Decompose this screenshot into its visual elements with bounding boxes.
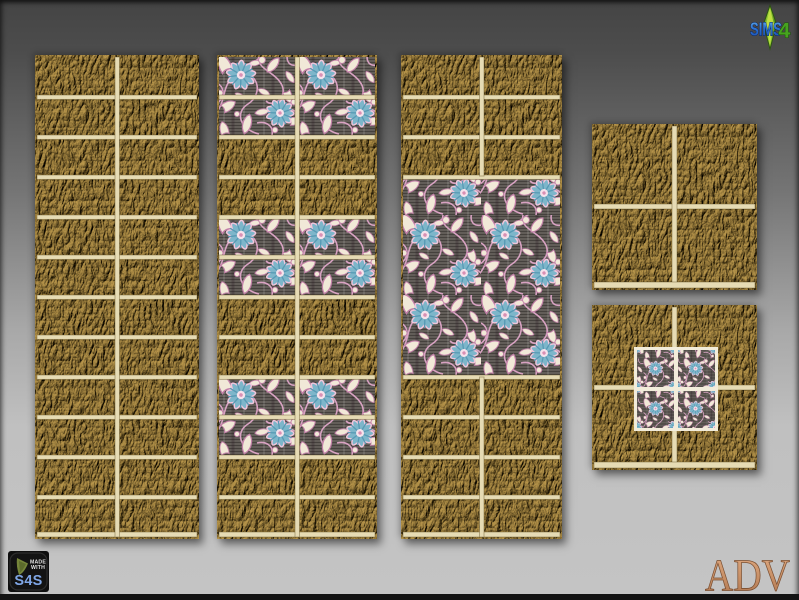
svg-text:WITH: WITH bbox=[31, 565, 45, 571]
svg-text:4: 4 bbox=[779, 20, 791, 43]
svg-text:S4S: S4S bbox=[14, 573, 42, 589]
svg-text:SIMS: SIMS bbox=[750, 19, 782, 40]
svg-text:ADV: ADV bbox=[705, 551, 790, 597]
